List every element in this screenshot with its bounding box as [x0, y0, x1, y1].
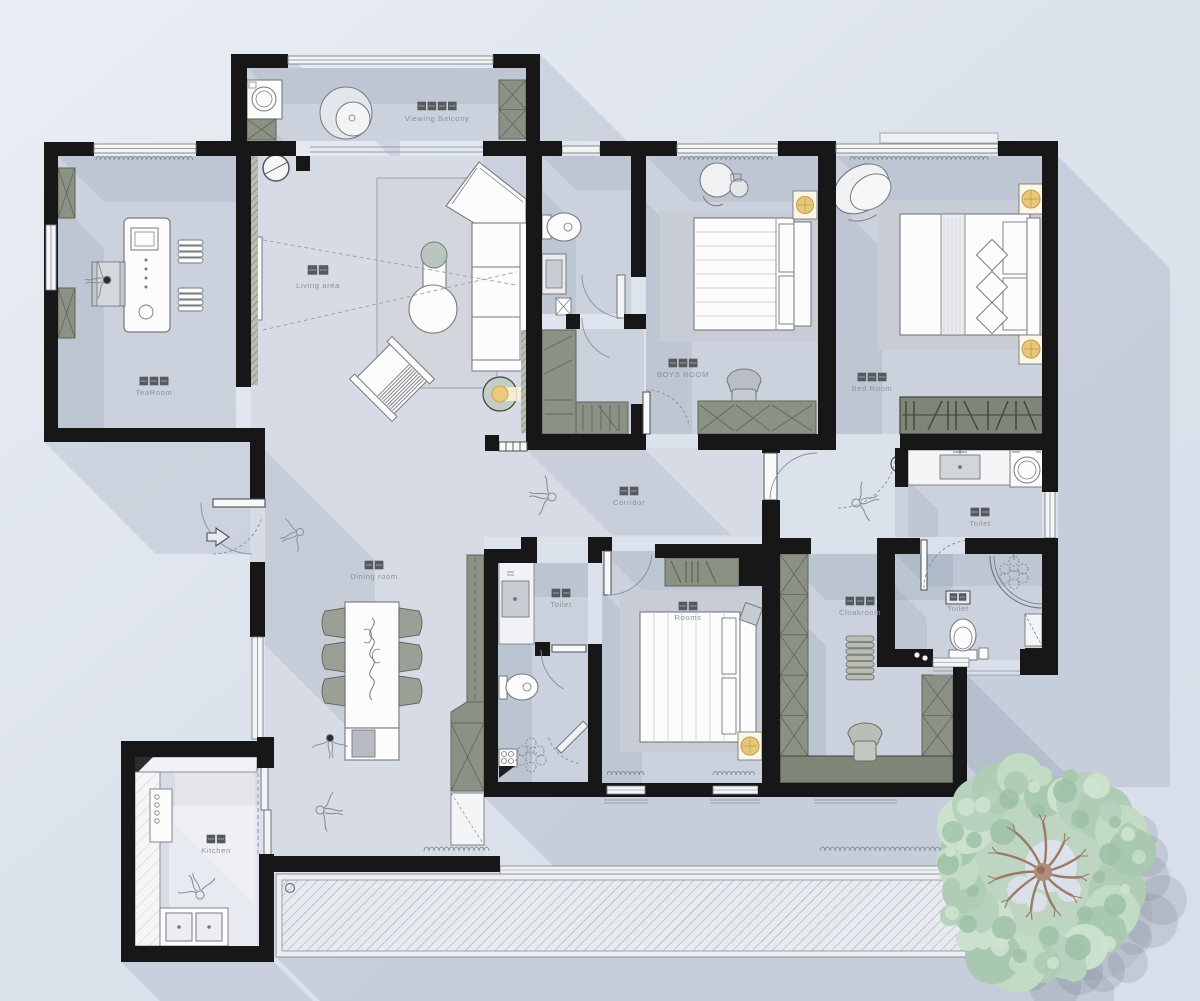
svg-text:Corridor: Corridor [613, 498, 645, 507]
svg-text:Toilet: Toilet [947, 604, 969, 613]
svg-text:Toilet: Toilet [969, 519, 991, 528]
svg-text:TeaRoom: TeaRoom [136, 388, 173, 397]
svg-text:Living area: Living area [296, 281, 340, 290]
svg-text:Bed Room: Bed Room [852, 384, 893, 393]
svg-text:Rooms: Rooms [674, 613, 701, 622]
svg-text:Viewing Balcony: Viewing Balcony [405, 114, 470, 123]
svg-text:BOYS ROOM: BOYS ROOM [657, 370, 709, 379]
svg-text:Dining room: Dining room [350, 572, 398, 581]
svg-text:Toilet: Toilet [550, 600, 572, 609]
svg-text:Cloakroom: Cloakroom [839, 608, 881, 617]
svg-text:Kitchen: Kitchen [201, 846, 231, 855]
